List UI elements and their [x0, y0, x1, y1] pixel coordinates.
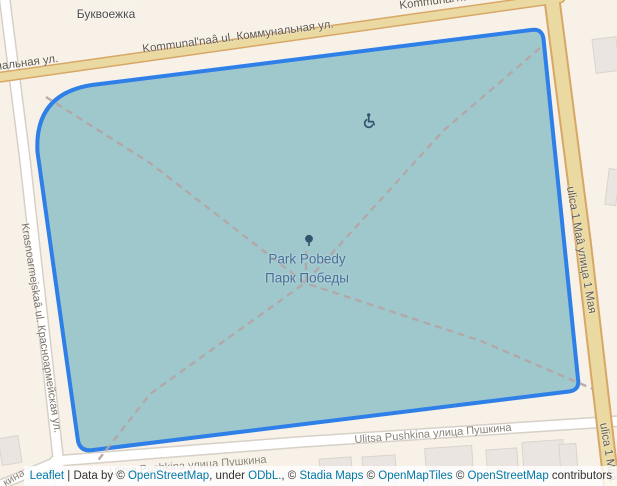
openmaptiles-link[interactable]: OpenMapTiles: [378, 470, 452, 482]
building: [0, 436, 22, 466]
attribution-text: , under: [209, 470, 248, 482]
attribution-text: ©: [453, 470, 468, 482]
attribution-bar: Leaflet | Data by © OpenStreetMap, under…: [24, 466, 617, 486]
openstreetmap-link[interactable]: OpenStreetMap: [128, 470, 209, 482]
attribution-text: contributors: [549, 470, 612, 482]
leaflet-link[interactable]: Leaflet: [30, 470, 65, 482]
attribution-text: ©: [116, 470, 128, 482]
openstreetmap-link-2[interactable]: OpenStreetMap: [468, 470, 549, 482]
building: [592, 37, 617, 74]
tree-icon: [303, 235, 316, 248]
map-canvas[interactable]: Bukvoežka Буквоежка Kommunal'naâ ul. Ком…: [0, 0, 617, 486]
attribution-text: ©: [363, 470, 378, 482]
attribution-text: , ©: [281, 470, 299, 482]
odbl-link[interactable]: ODbL.: [248, 470, 281, 482]
building: [605, 169, 617, 206]
attribution-text: Data by: [73, 470, 116, 482]
wheelchair-icon: [362, 113, 378, 129]
stadia-maps-link[interactable]: Stadia Maps: [299, 470, 363, 482]
